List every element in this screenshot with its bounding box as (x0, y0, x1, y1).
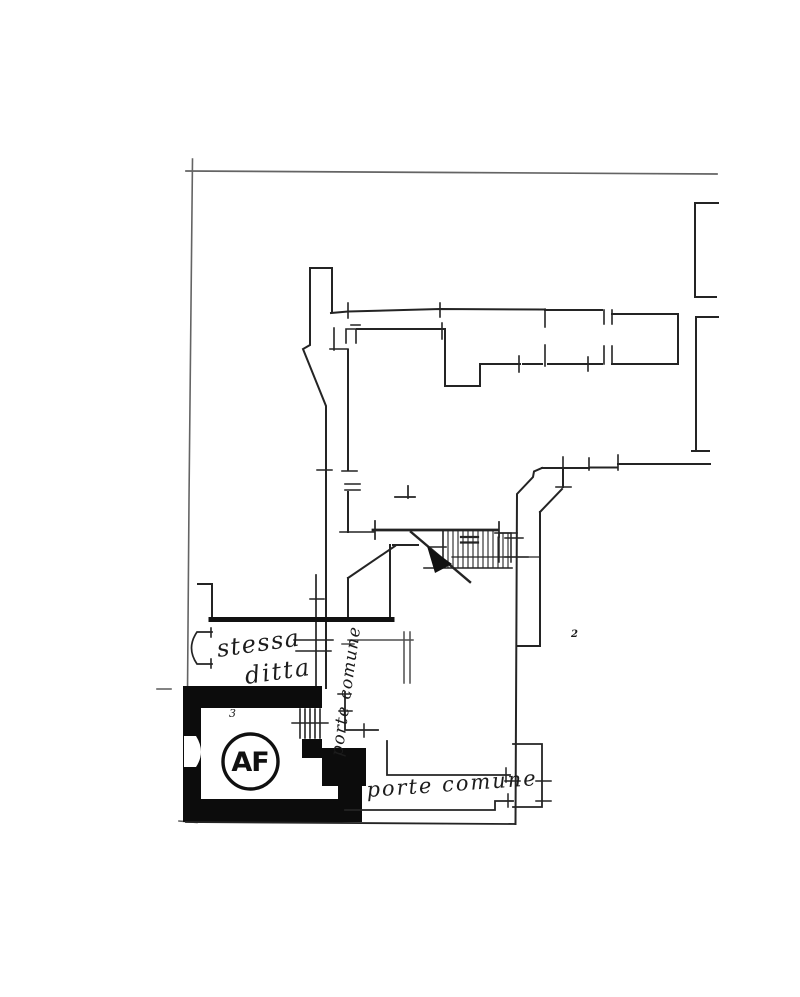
room-door-arc (192, 632, 213, 664)
upper-wall-door-jambs (348, 303, 612, 327)
upper-left-wall-path (303, 268, 332, 688)
room-top-bracket (198, 584, 212, 617)
unit-bottom-wall (183, 799, 362, 822)
passage-lower-line (345, 801, 513, 810)
right-neighbor-brackets (692, 203, 718, 451)
corridor-ticks (495, 487, 571, 533)
building-outline (303, 268, 678, 688)
label-ditta: ditta (243, 653, 313, 690)
unit-lower-jog (338, 783, 362, 803)
unit-left-niche (184, 736, 201, 767)
mid-horizontal-wall (542, 464, 710, 468)
af-label: AF (231, 747, 268, 778)
upper-horizontal-wall (331, 309, 678, 314)
unit-top-wall (183, 686, 322, 708)
bracket-upper (695, 203, 718, 297)
upper-left-wall-ticks (310, 470, 332, 599)
bottom-long-line (186, 822, 515, 824)
label-porte-comune-horizontal: porte comune (366, 766, 539, 802)
right-room-walls (445, 315, 678, 386)
door-tee-symbol (395, 486, 415, 498)
stair-small-mark: 2 (570, 629, 578, 640)
bracket-lower (692, 317, 718, 451)
floor-plan-svg: AF stessa ditta porte comune porte comun… (0, 0, 800, 997)
top-border-line (186, 171, 717, 174)
room-small-mark: 3 (229, 707, 236, 720)
door-jamb-detail-left (330, 325, 360, 350)
staircase (373, 521, 540, 582)
scanned-floor-plan-page: AF stessa ditta porte comune porte comun… (0, 0, 800, 997)
diagonal-wall-path (348, 545, 418, 618)
label-porte-comune-vertical: porte comune (327, 625, 365, 758)
corridor-door-bars (340, 471, 374, 532)
